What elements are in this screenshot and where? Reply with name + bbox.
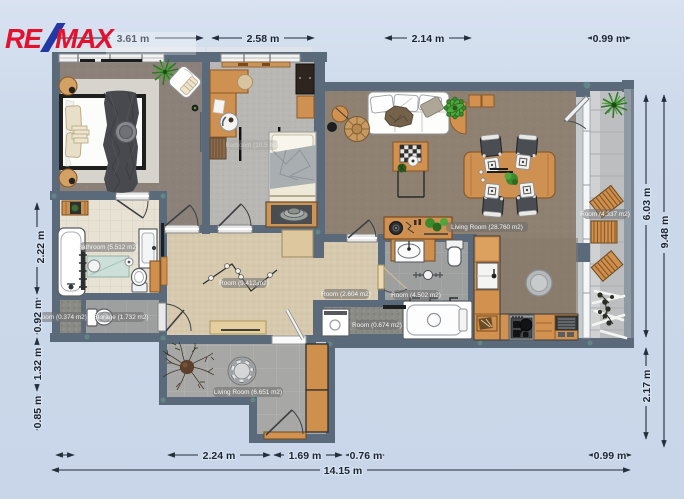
svg-text:Room (4.337 m2): Room (4.337 m2) <box>580 211 630 218</box>
svg-text:2.58 m: 2.58 m <box>247 33 280 45</box>
svg-text:Room (4.502 m2): Room (4.502 m2) <box>391 292 441 299</box>
svg-text:Bathroom (5.512 m2): Bathroom (5.512 m2) <box>78 244 138 251</box>
svg-text:14.15 m: 14.15 m <box>324 465 363 477</box>
svg-text:0.99 m: 0.99 m <box>594 450 627 462</box>
svg-text:Living Room (28.760 m2): Living Room (28.760 m2) <box>451 224 523 231</box>
svg-text:0.99 m: 0.99 m <box>593 33 626 45</box>
svg-text:1.69 m: 1.69 m <box>289 450 322 462</box>
svg-text:Storage (1.732 m2): Storage (1.732 m2) <box>93 314 148 321</box>
svg-text:9.48 m: 9.48 m <box>659 216 671 249</box>
svg-text:2.22 m: 2.22 m <box>35 231 47 264</box>
svg-text:2.14 m: 2.14 m <box>412 33 445 45</box>
svg-text:MAX: MAX <box>55 23 115 54</box>
svg-text:Living Room (6.651 m2): Living Room (6.651 m2) <box>214 389 282 396</box>
svg-text:Room (0.674 m2): Room (0.674 m2) <box>352 322 402 329</box>
svg-text:6.03 m: 6.03 m <box>641 188 653 221</box>
svg-text:RE: RE <box>5 23 44 54</box>
svg-text:2.24 m: 2.24 m <box>203 450 236 462</box>
svg-text:0.85 m: 0.85 m <box>32 396 44 429</box>
svg-text:Room (2.604 m2): Room (2.604 m2) <box>321 291 371 298</box>
svg-text:0.92 m: 0.92 m <box>32 300 44 333</box>
svg-text:Room (0.374 m2): Room (0.374 m2) <box>37 314 87 321</box>
svg-text:1.32 m: 1.32 m <box>32 348 44 381</box>
svg-text:Bedroom (10.5 m2): Bedroom (10.5 m2) <box>225 142 280 149</box>
svg-text:0.76 m: 0.76 m <box>350 450 383 462</box>
svg-text:2.17 m: 2.17 m <box>641 370 653 403</box>
svg-text:Room (9.412 m2): Room (9.412 m2) <box>219 280 269 287</box>
